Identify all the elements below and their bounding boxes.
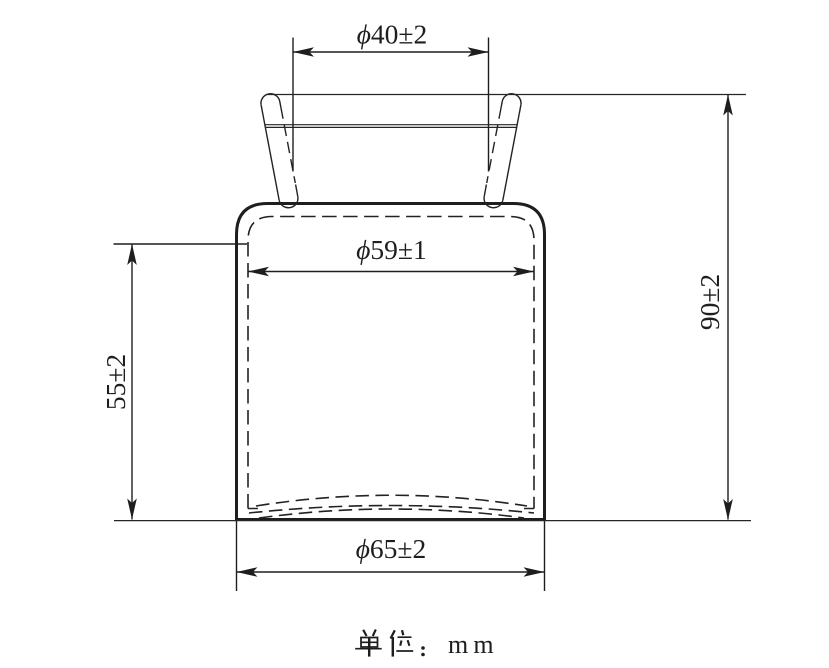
svg-text:90±2: 90±2 [694, 274, 725, 330]
svg-text:65±2: 65±2 [370, 533, 426, 564]
svg-text:55±2: 55±2 [100, 354, 131, 410]
svg-text:mm: mm [448, 630, 499, 659]
svg-text:40±2: 40±2 [371, 19, 427, 50]
svg-text:59±1: 59±1 [370, 234, 426, 265]
